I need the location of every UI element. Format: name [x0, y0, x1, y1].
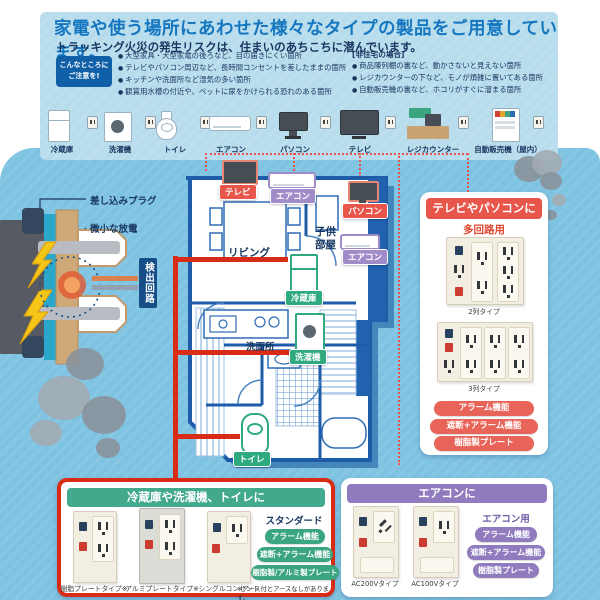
outlet-product-3row: [437, 322, 533, 382]
marker-washer: 洗濯機: [289, 349, 327, 365]
marker-aircon2: エアコン: [342, 249, 388, 265]
television-icon: [340, 110, 379, 135]
panel-standard-footnote: ※アース付とアースなしがあります。: [237, 584, 331, 600]
feature-pill: 樹脂製プレート: [434, 436, 534, 451]
room-kids: 子供部屋: [315, 226, 339, 251]
red-line-to-toilet: [176, 434, 240, 439]
floorplan-tv-icon: [222, 160, 258, 185]
refrigerator-icon: [48, 110, 70, 142]
product-caption-3row: 3列タイプ: [420, 383, 548, 393]
nonresidential-label: [非住宅の場合]: [352, 49, 405, 60]
feature-pill: アラーム機能: [434, 401, 534, 416]
connector-dotted-horizontal: [205, 153, 468, 155]
home-bullet-3: キッチンや洗面所など湿気の多い箇所: [118, 76, 251, 85]
marker-pc: パソコン: [342, 203, 388, 219]
panel-standard-title: 冷蔵庫や洗濯機、トイレに: [67, 488, 325, 507]
panel-tv-pc: テレビやパソコンに 多回路用 2列タイプ: [420, 192, 548, 455]
floorplan-fridge-icon: [290, 254, 318, 295]
outlet-plug-icon: [458, 116, 469, 129]
detection-circuit-label: 検出回路: [139, 258, 157, 308]
marker-fridge: 冷蔵庫: [285, 290, 323, 306]
connector-dotted-v1: [205, 153, 207, 171]
outlet-product-aluminum: [139, 508, 185, 584]
red-line-to-washer: [176, 350, 293, 355]
cash-register-icon: [425, 114, 441, 126]
home-bullet-2: テレビやパソコン周辺など、長時間コンセントを差したままの箇所: [118, 64, 346, 73]
panel-aircon-category: エアコン用: [469, 511, 543, 525]
connector-dotted-v5: [467, 153, 469, 192]
marker-toilet: トイレ: [233, 451, 271, 467]
appliance-tv: テレビ: [322, 108, 398, 155]
floorplan-washer-icon: [295, 313, 325, 353]
product-caption-ac100: AC100Vタイプ: [395, 578, 475, 588]
smoke-cloud: [30, 420, 62, 446]
appliance-vending: 自動販売機（屋内）: [470, 108, 546, 155]
feature-pill: 樹脂製プレート: [473, 563, 539, 578]
plug-discharge-illustration: [0, 168, 175, 478]
floorplan-pc-icon: [348, 181, 379, 202]
outlet-product-resin: [73, 511, 117, 583]
smoke-cloud: [540, 172, 562, 190]
floorplan-toilet-icon: [241, 413, 269, 455]
smoke-cloud: [66, 348, 104, 380]
connector-dotted-v2: [293, 153, 295, 171]
attention-badge: こんなところに ご注意を!: [56, 56, 112, 87]
vending-machine-icon: [492, 108, 520, 142]
floorplan-aircon2-icon: [340, 234, 380, 250]
floorplan-aircon-icon: [268, 172, 316, 189]
panel-tv-pc-title: テレビやパソコンに: [426, 198, 542, 219]
room-living: リビング: [228, 245, 270, 260]
marker-aircon1: エアコン: [270, 188, 316, 204]
panel-standard-category: スタンダード: [257, 513, 331, 527]
smoke-cloud: [96, 438, 120, 458]
plug-label: 差し込みプラグ: [90, 193, 157, 207]
feature-pill: 遮断+アラーム機能: [257, 547, 333, 562]
panel-tv-pc-category: 多回路用: [420, 222, 548, 237]
smoke-cloud: [82, 396, 126, 434]
panel-aircon-title: エアコンに: [347, 484, 547, 503]
outlet-product-single: [207, 511, 251, 583]
feature-pill: 遮断+アラーム機能: [467, 545, 545, 560]
outlet-product-ac200: [353, 506, 399, 578]
appliance-register: レジカウンター: [395, 108, 471, 155]
feature-pill: 樹脂製/アルミ製プレート: [251, 565, 339, 580]
attention-badge-line2: ご注意を!: [68, 72, 99, 80]
red-line-vertical: [173, 256, 178, 482]
room-washroom: 洗面所: [246, 339, 275, 353]
feature-pill: アラーム機能: [475, 527, 537, 542]
feature-pill: 遮断+アラーム機能: [430, 419, 538, 434]
nonres-bullet-1: 商品陳列棚の裏など、動かさないと見えない箇所: [352, 62, 521, 71]
nonres-bullet-2: レジカウンターの下など、モノが煩雑に置いてある箇所: [352, 74, 543, 83]
appliance-label: 自動販売機（屋内）: [470, 144, 546, 155]
outlet-product-2row: [446, 237, 524, 305]
washing-machine-icon: [104, 112, 132, 142]
attention-badge-line1: こんなところに: [60, 61, 109, 69]
nonres-bullet-3: 自動販売機の裏など、ホコリがすぐに溜まる箇所: [352, 86, 521, 95]
computer-icon: [279, 112, 308, 131]
product-caption-2row: 2列タイプ: [420, 306, 548, 316]
air-conditioner-icon: [209, 116, 251, 131]
outlet-plug-icon: [533, 116, 544, 129]
panel-aircon: エアコンに AC200Vタイプ AC100Vタイプ エアコン用 アラーム機能: [341, 478, 553, 597]
home-bullet-4: 観賞用水槽の付近や、ペットに尿をかけられる恐れのある箇所: [118, 88, 332, 97]
infographic-page: 家電や使う場所にあわせた様々なタイプの製品をご用意しています。 トラッキング火災…: [0, 0, 600, 600]
panel-standard: 冷蔵庫や洗濯機、トイレに 樹脂プレートタイプ※ アルミプレートタイプ※: [57, 478, 335, 597]
marker-tv: テレビ: [219, 184, 257, 200]
outlet-product-ac100: [413, 506, 459, 578]
smoke-cloud: [552, 194, 566, 206]
discharge-label: 微小な放電: [90, 221, 138, 235]
feature-pill: アラーム機能: [265, 529, 325, 544]
home-bullet-1: 大型家具・大型家電の後ろなど、目の届きにくい箇所: [118, 52, 302, 61]
